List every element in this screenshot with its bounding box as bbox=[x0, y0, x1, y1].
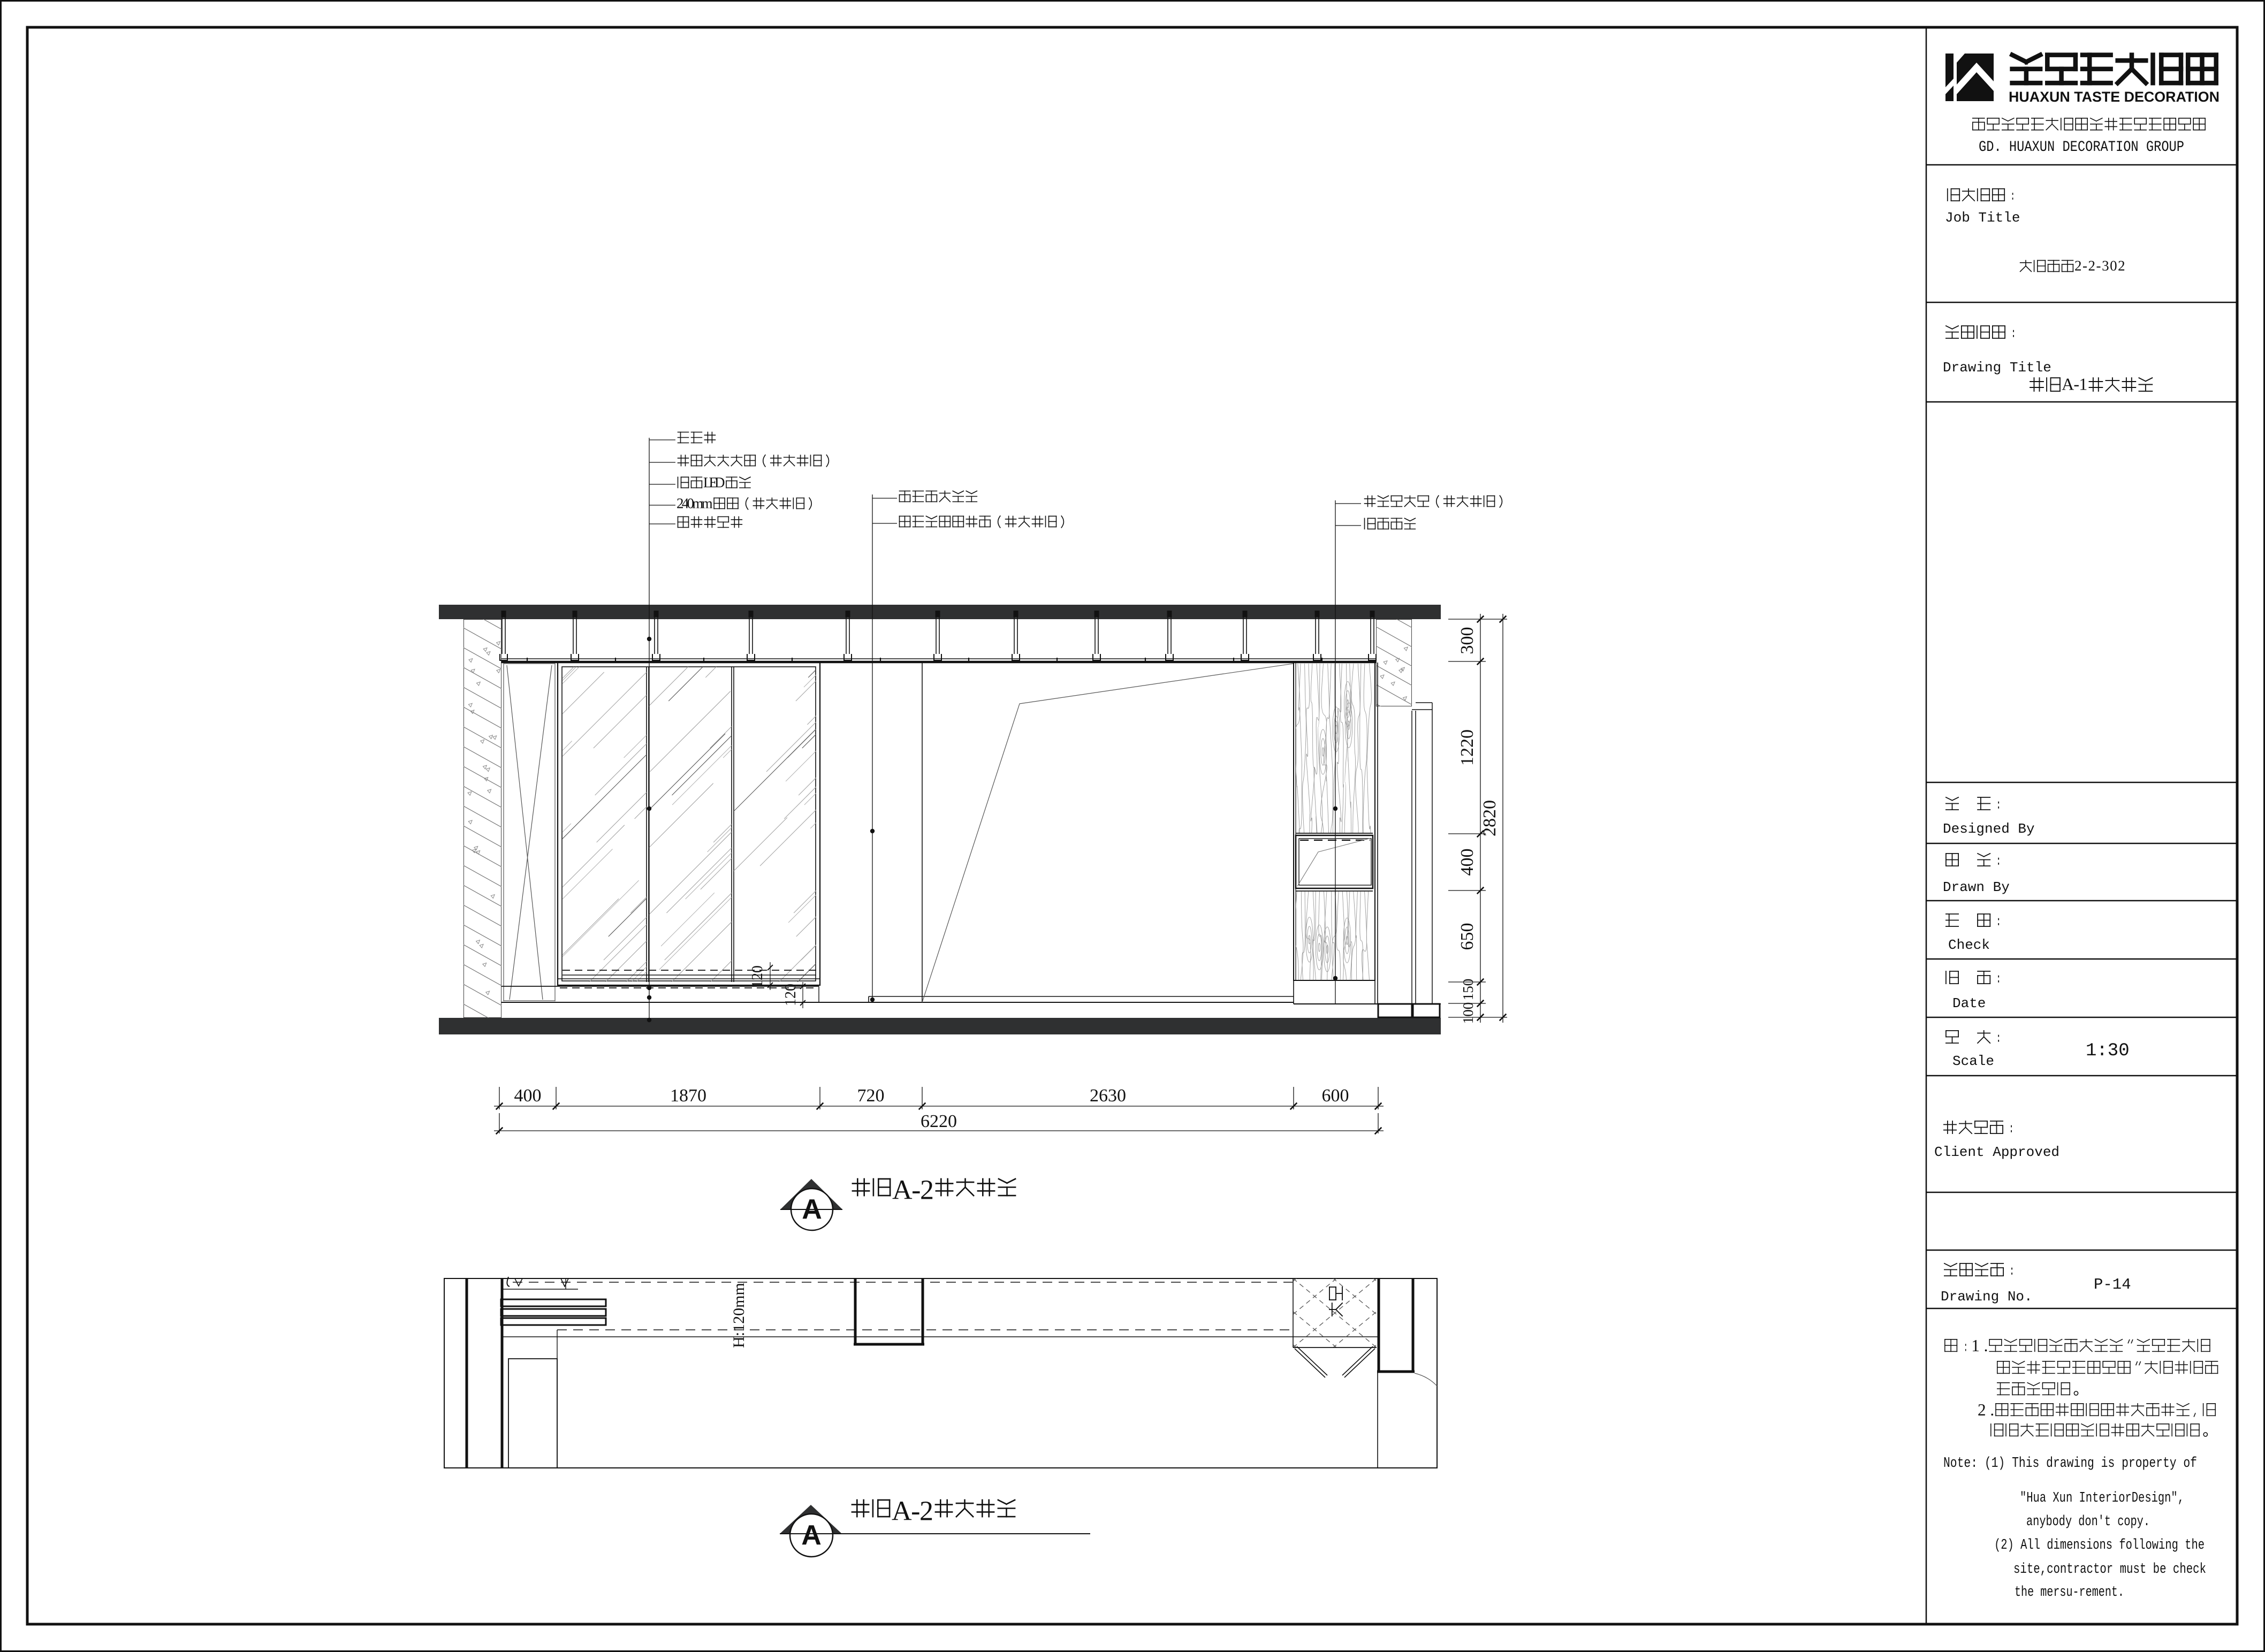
svg-text:Drawing Title: Drawing Title bbox=[1943, 360, 2051, 376]
svg-text:Drawing No.: Drawing No. bbox=[1941, 1289, 2033, 1305]
svg-text:120: 120 bbox=[782, 984, 799, 1006]
svg-text:Check: Check bbox=[1948, 937, 1990, 953]
svg-text:Drawn By: Drawn By bbox=[1943, 879, 2010, 895]
svg-text:HUAXUN TASTE DECORATION: HUAXUN TASTE DECORATION bbox=[2009, 89, 2220, 105]
svg-text:the mersu-rement.: the mersu-rement. bbox=[2015, 1585, 2124, 1601]
svg-text:120: 120 bbox=[749, 965, 766, 988]
svg-text:A: A bbox=[801, 1520, 822, 1551]
svg-text:400: 400 bbox=[514, 1086, 542, 1106]
svg-text:A-2: A-2 bbox=[892, 1496, 933, 1527]
svg-text:Scale: Scale bbox=[1952, 1053, 1994, 1069]
svg-text:A-1: A-1 bbox=[2062, 375, 2087, 394]
svg-text:P-14: P-14 bbox=[2094, 1276, 2131, 1293]
svg-text:Client Approved: Client Approved bbox=[1934, 1144, 2059, 1160]
svg-text:400: 400 bbox=[1457, 849, 1477, 876]
svg-text:Date: Date bbox=[1952, 995, 1986, 1011]
svg-text:2-2-302: 2-2-302 bbox=[2074, 258, 2125, 274]
svg-text:650: 650 bbox=[1457, 923, 1477, 950]
svg-text:"Hua Xun InteriorDesign",: "Hua Xun InteriorDesign", bbox=[2020, 1490, 2184, 1506]
svg-text:H:120mm: H:120mm bbox=[730, 1283, 748, 1348]
svg-text:A-2: A-2 bbox=[892, 1175, 934, 1206]
svg-text:site,contractor must be check: site,contractor must be check bbox=[2013, 1562, 2206, 1578]
svg-text:720: 720 bbox=[857, 1086, 885, 1106]
svg-text:anybody don't copy.: anybody don't copy. bbox=[2026, 1514, 2150, 1530]
svg-text:2630: 2630 bbox=[1090, 1086, 1126, 1106]
svg-text:(2) All dimensions following t: (2) All dimensions following the bbox=[1994, 1537, 2205, 1554]
svg-text:1:30: 1:30 bbox=[2086, 1041, 2130, 1061]
svg-text:100: 100 bbox=[1460, 1002, 1476, 1024]
svg-text:1870: 1870 bbox=[670, 1086, 706, 1106]
svg-text:GD. HUAXUN DECORATION GROUP: GD. HUAXUN DECORATION GROUP bbox=[1979, 139, 2184, 156]
svg-text:1220: 1220 bbox=[1457, 729, 1477, 766]
svg-text:240mm: 240mm bbox=[677, 496, 713, 512]
svg-text:6220: 6220 bbox=[921, 1112, 957, 1131]
svg-text:A: A bbox=[802, 1194, 822, 1225]
svg-text:Job Title: Job Title bbox=[1945, 210, 2020, 226]
svg-text:2820: 2820 bbox=[1480, 800, 1500, 836]
svg-text:LED: LED bbox=[703, 475, 725, 491]
svg-text:600: 600 bbox=[1322, 1086, 1349, 1106]
svg-text:300: 300 bbox=[1457, 627, 1477, 654]
svg-text:Designed By: Designed By bbox=[1943, 821, 2035, 837]
svg-text:Note: (1) This drawing is pro: Note: (1) This drawing is property of bbox=[1943, 1456, 2197, 1472]
svg-text:150: 150 bbox=[1460, 979, 1476, 1001]
